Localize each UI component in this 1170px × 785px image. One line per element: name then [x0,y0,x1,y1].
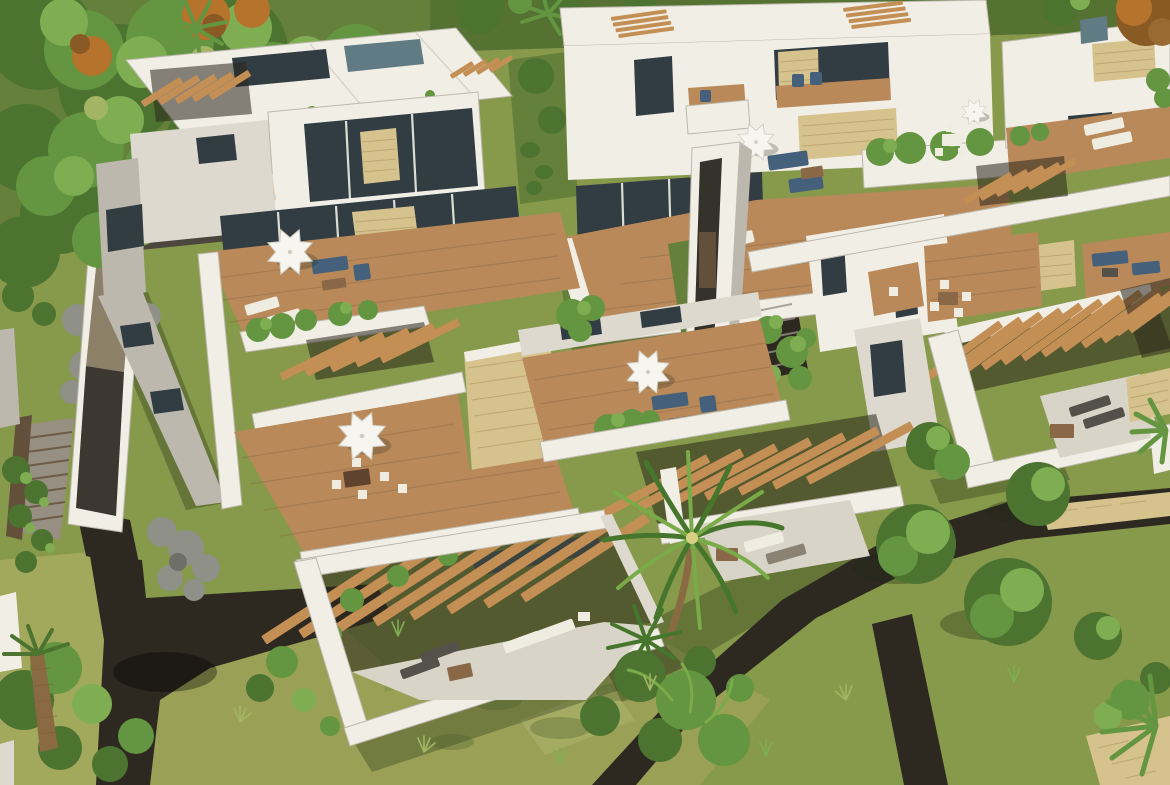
window [634,56,674,116]
planter-greens [883,139,897,153]
rock [192,554,220,582]
banana-plant [788,366,812,390]
planter-greens [269,313,295,339]
planter-greens [611,413,625,427]
chair [930,302,939,311]
tower-door [699,232,716,288]
chair [946,124,954,132]
autumn-foliage [70,34,90,54]
hedge [520,142,540,158]
tree-highlight [1000,568,1044,612]
hedge [535,165,553,179]
chair [958,148,966,156]
tree-highlight [54,156,94,196]
planter-greens [1010,126,1030,146]
tree-highlight [1096,616,1120,640]
shrub [246,674,274,702]
planter-greens [568,318,592,342]
hedge [526,181,542,195]
planter-greens [340,302,352,314]
planter-greens [577,301,591,315]
window [870,340,906,397]
planter-greens [894,132,926,164]
side-table [578,612,590,621]
shrub [266,646,298,678]
window [150,388,184,414]
leaf-highlight [39,497,49,507]
pergola-plant [340,588,364,612]
balcony-chair [700,90,711,102]
tree-highlight [926,426,950,450]
pergola-plant [387,565,409,587]
rock-shaded [169,553,187,571]
shrub [292,688,316,712]
palm-shadow-on-path [113,652,217,692]
rock [183,579,205,601]
leaf-highlight [20,472,32,484]
low-table [1050,424,1074,438]
planter-greens [295,309,317,331]
balcony-chair [810,72,822,85]
neighbor-wall-fragment [0,740,14,785]
tree-highlight [1031,467,1065,501]
armchair [699,395,717,413]
banana-plant [790,336,806,352]
shrub [320,716,340,736]
chair [332,480,341,489]
shrub [92,746,128,782]
render-scene [0,0,1170,785]
planter-greens [966,128,994,156]
leaf-plant [15,551,37,573]
dining-table [942,134,962,146]
shrub [118,718,154,754]
dining-table [938,292,958,305]
chair [889,287,898,296]
leaf-highlight [45,543,55,553]
tropical-shrub [580,696,620,736]
tree-canopy [538,106,566,134]
tree-highlight [906,510,950,554]
leaf-highlight [25,523,35,533]
chair [935,148,943,156]
chair [380,472,389,481]
chair [358,490,367,499]
stone-pillar [360,128,400,184]
window [196,134,237,164]
shrub [32,302,56,326]
chair [962,292,971,301]
planter-greens [1031,123,1049,141]
planter-greens [358,300,378,320]
architectural-render [0,0,1170,785]
balcony-parapet [686,100,750,134]
window [1080,16,1108,44]
armchair [353,263,371,281]
balcony-chair [792,74,804,87]
chair [940,280,949,289]
palm-crown-center [686,532,698,544]
shrub [72,684,112,724]
window [120,322,154,348]
chair [398,484,407,493]
tree-canopy [518,58,554,94]
tree-highlight [84,96,108,120]
banana-plant [769,315,783,329]
coffee-table [1102,268,1118,277]
chair [352,458,361,467]
planter-greens [260,318,272,330]
window [106,204,144,252]
chair [954,308,963,317]
lawn-mottle [430,734,474,750]
